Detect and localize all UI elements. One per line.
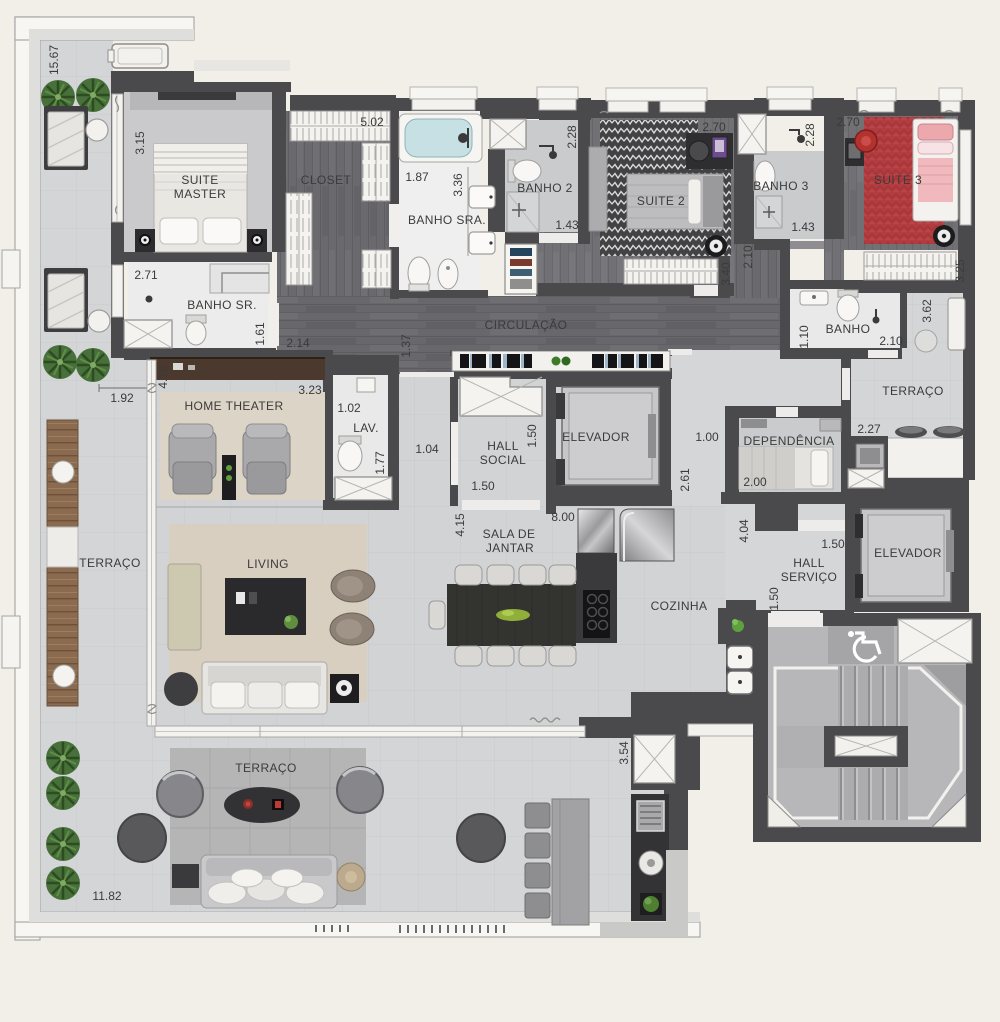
- svg-text:SOCIAL: SOCIAL: [480, 453, 526, 467]
- svg-text:SERVIÇO: SERVIÇO: [781, 570, 838, 584]
- svg-text:BANHO 3: BANHO 3: [753, 179, 808, 193]
- svg-text:SUITE: SUITE: [181, 173, 218, 187]
- svg-text:DEPENDÊNCIA: DEPENDÊNCIA: [743, 433, 834, 448]
- svg-text:TERRAÇO: TERRAÇO: [882, 384, 943, 398]
- svg-text:HALL: HALL: [793, 556, 825, 570]
- svg-text:ELEVADOR: ELEVADOR: [562, 430, 630, 444]
- svg-text:3.15: 3.15: [133, 131, 147, 155]
- svg-text:HALL: HALL: [487, 439, 519, 453]
- svg-text:1.50: 1.50: [821, 537, 845, 551]
- svg-text:COZINHA: COZINHA: [651, 599, 708, 613]
- svg-text:2.71: 2.71: [134, 268, 158, 282]
- svg-text:SUITE 3: SUITE 3: [874, 173, 922, 187]
- svg-text:4.16: 4.16: [156, 365, 170, 389]
- svg-text:3.25: 3.25: [953, 259, 967, 283]
- svg-text:11.82: 11.82: [92, 889, 121, 903]
- svg-text:LAV.: LAV.: [353, 421, 379, 435]
- svg-text:2.00: 2.00: [743, 475, 767, 489]
- svg-text:1.50: 1.50: [525, 424, 539, 448]
- svg-text:1.61: 1.61: [253, 322, 267, 346]
- svg-text:2.14: 2.14: [286, 336, 310, 350]
- svg-text:4.04: 4.04: [737, 519, 751, 543]
- svg-text:ELEVADOR: ELEVADOR: [874, 546, 942, 560]
- svg-text:8.00: 8.00: [551, 510, 575, 524]
- svg-text:1.92: 1.92: [110, 391, 134, 405]
- svg-text:2.70: 2.70: [836, 115, 860, 129]
- svg-text:SALA DE: SALA DE: [483, 527, 536, 541]
- svg-text:1.04: 1.04: [415, 442, 439, 456]
- svg-text:2.10: 2.10: [741, 245, 755, 269]
- svg-text:BANHO SR.: BANHO SR.: [187, 298, 257, 312]
- svg-text:2.27: 2.27: [857, 422, 881, 436]
- svg-text:1.43: 1.43: [555, 218, 579, 232]
- svg-text:2.10: 2.10: [879, 334, 903, 348]
- svg-text:5.02: 5.02: [360, 115, 384, 129]
- svg-text:3.54: 3.54: [617, 741, 631, 765]
- svg-text:2.28: 2.28: [803, 123, 817, 147]
- svg-text:3.40: 3.40: [719, 262, 733, 286]
- svg-text:CLOSET: CLOSET: [301, 173, 352, 187]
- svg-text:TERRAÇO: TERRAÇO: [79, 556, 140, 570]
- svg-text:3.62: 3.62: [920, 299, 934, 323]
- svg-text:1.10: 1.10: [797, 325, 811, 349]
- svg-text:BANHO: BANHO: [826, 322, 871, 336]
- svg-text:1.50: 1.50: [767, 587, 781, 611]
- svg-text:1.00: 1.00: [695, 430, 719, 444]
- svg-text:CIRCULAÇÃO: CIRCULAÇÃO: [485, 318, 568, 332]
- svg-text:HOME THEATER: HOME THEATER: [184, 399, 283, 413]
- svg-text:2.70: 2.70: [702, 120, 726, 134]
- svg-text:1.02: 1.02: [337, 401, 361, 415]
- svg-text:MASTER: MASTER: [174, 187, 226, 201]
- svg-text:2.28: 2.28: [565, 125, 579, 149]
- svg-text:BANHO 2: BANHO 2: [517, 181, 572, 195]
- svg-text:SUITE 2: SUITE 2: [637, 194, 685, 208]
- svg-text:JANTAR: JANTAR: [486, 541, 534, 555]
- svg-text:BANHO SRA.: BANHO SRA.: [408, 213, 486, 227]
- svg-text:1.87: 1.87: [405, 170, 429, 184]
- svg-text:3.23: 3.23: [298, 383, 322, 397]
- svg-text:1.77: 1.77: [373, 451, 387, 475]
- svg-text:1.37: 1.37: [399, 334, 413, 358]
- svg-text:2.61: 2.61: [678, 468, 692, 492]
- svg-text:TERRAÇO: TERRAÇO: [235, 761, 296, 775]
- svg-text:4.15: 4.15: [453, 513, 467, 537]
- svg-text:3.36: 3.36: [451, 173, 465, 197]
- svg-text:LIVING: LIVING: [247, 557, 289, 571]
- svg-text:1.50: 1.50: [471, 479, 495, 493]
- svg-text:1.43: 1.43: [791, 220, 815, 234]
- svg-text:15.67: 15.67: [47, 45, 61, 75]
